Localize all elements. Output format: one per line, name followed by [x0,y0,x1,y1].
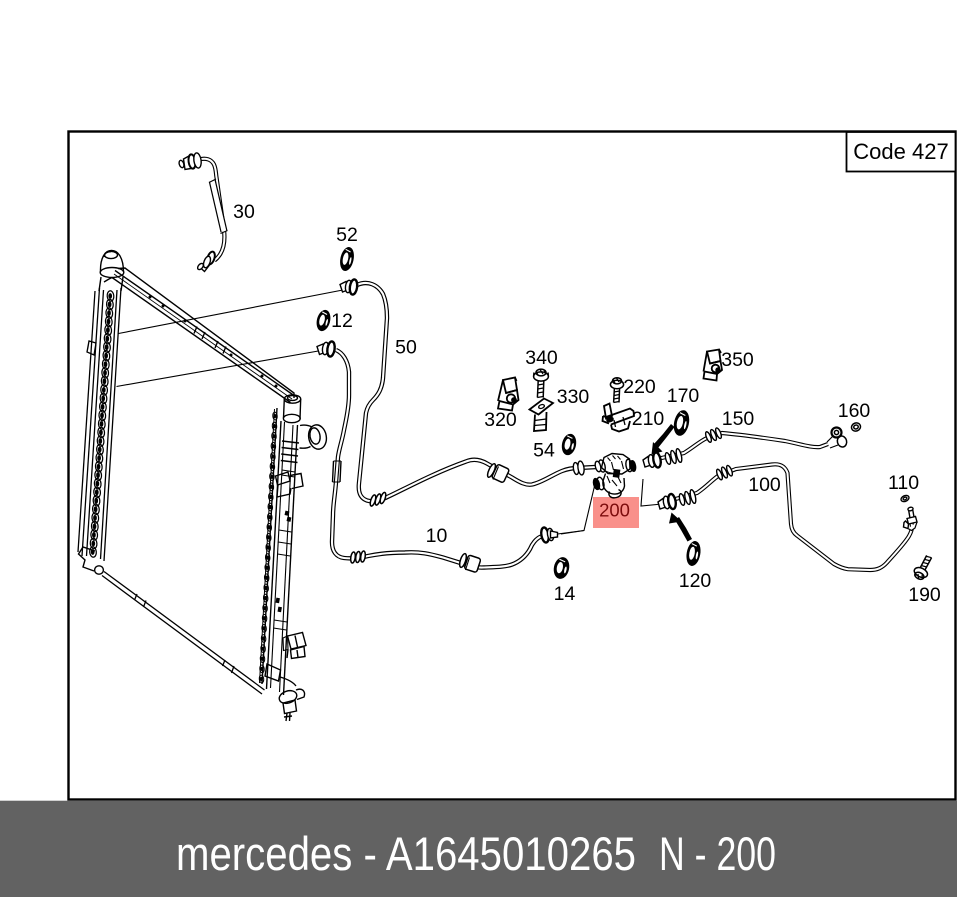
svg-text:Code 427: Code 427 [853,139,948,164]
svg-text:220: 220 [623,376,656,398]
svg-text:54: 54 [533,440,555,462]
svg-text:52: 52 [336,224,358,246]
svg-text:14: 14 [554,583,576,605]
svg-text:50: 50 [395,337,417,359]
svg-text:30: 30 [233,201,255,223]
svg-text:160: 160 [838,400,871,422]
svg-text:120: 120 [679,570,712,592]
svg-text:100: 100 [748,474,781,496]
svg-text:190: 190 [908,584,941,606]
svg-text:330: 330 [557,386,590,408]
svg-text:10: 10 [426,525,448,547]
svg-text:350: 350 [721,349,754,371]
svg-text:110: 110 [888,472,919,494]
svg-text:340: 340 [525,347,558,369]
svg-text:210: 210 [632,408,665,430]
svg-text:200: 200 [599,500,630,521]
svg-text:12: 12 [331,310,353,332]
svg-text:170: 170 [667,385,700,407]
svg-text:mercedes - A1645010265: mercedes - A1645010265 [176,827,636,880]
svg-text:N - 200: N - 200 [659,827,776,880]
svg-text:320: 320 [484,409,517,431]
svg-text:150: 150 [722,408,755,430]
